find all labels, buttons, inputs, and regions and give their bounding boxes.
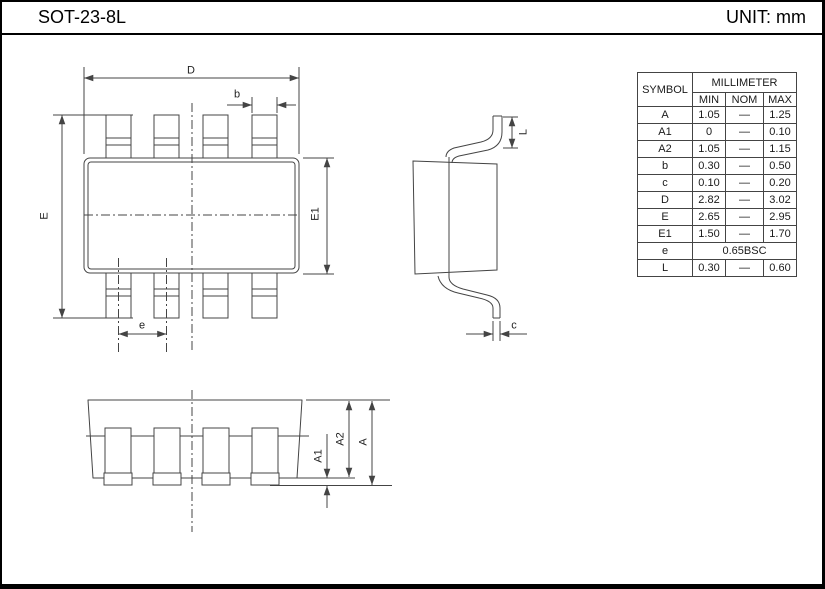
table-cell: 2.82 <box>693 192 726 209</box>
dim-label-e1: E1 <box>311 207 322 220</box>
dim-label-b: b <box>234 90 240 101</box>
table-cell: 0.30 <box>693 260 726 277</box>
table-cell: A1 <box>638 124 693 141</box>
table-cell: L <box>638 260 693 277</box>
table-cell: — <box>726 260 764 277</box>
col-header-millimeter: MILLIMETER <box>693 73 797 93</box>
table-cell: E1 <box>638 226 693 243</box>
dim-label-l: L <box>519 129 530 135</box>
table-cell: 0.65BSC <box>693 243 797 260</box>
table-cell: 2.95 <box>764 209 797 226</box>
table-cell: — <box>726 141 764 158</box>
table-row: A1 0 — 0.10 <box>638 124 797 141</box>
dim-label-e-pitch: e <box>139 321 145 332</box>
table-row: c 0.10 — 0.20 <box>638 175 797 192</box>
col-header-symbol: SYMBOL <box>638 73 693 107</box>
table-row: E1 1.50 — 1.70 <box>638 226 797 243</box>
dim-label-a2: A2 <box>336 432 347 445</box>
dim-label-d: D <box>187 66 195 77</box>
table-cell: — <box>726 124 764 141</box>
table-cell: 0.60 <box>764 260 797 277</box>
table-cell: — <box>726 226 764 243</box>
table-cell: 1.05 <box>693 141 726 158</box>
table-cell: 2.65 <box>693 209 726 226</box>
dim-label-a: A <box>359 438 370 445</box>
dim-label-e-width: E <box>40 212 51 219</box>
dim-label-a1: A1 <box>314 449 325 462</box>
table-cell: 1.25 <box>764 107 797 124</box>
table-cell: — <box>726 192 764 209</box>
table-cell: c <box>638 175 693 192</box>
table-cell: — <box>726 209 764 226</box>
table-cell: 0 <box>693 124 726 141</box>
table-cell: 0.10 <box>764 124 797 141</box>
table-cell: 0.50 <box>764 158 797 175</box>
table-cell: 3.02 <box>764 192 797 209</box>
side-view-body <box>413 161 497 274</box>
table-cell: A2 <box>638 141 693 158</box>
table-cell: e <box>638 243 693 260</box>
col-header-min: MIN <box>693 93 726 107</box>
table-row: b 0.30 — 0.50 <box>638 158 797 175</box>
datasheet-page: SOT-23-8L UNIT: mm <box>0 0 825 589</box>
table-cell: A <box>638 107 693 124</box>
table-cell: — <box>726 107 764 124</box>
dimensions-table: SYMBOL MILLIMETER MIN NOM MAX A 1.05 — 1… <box>637 72 797 277</box>
col-header-max: MAX <box>764 93 797 107</box>
table-cell: D <box>638 192 693 209</box>
col-header-nom: NOM <box>726 93 764 107</box>
table-row: A 1.05 — 1.25 <box>638 107 797 124</box>
table-cell: 1.70 <box>764 226 797 243</box>
table-cell: b <box>638 158 693 175</box>
table-row: D 2.82 — 3.02 <box>638 192 797 209</box>
table-cell: 1.15 <box>764 141 797 158</box>
table-cell: 1.50 <box>693 226 726 243</box>
table-cell: — <box>726 158 764 175</box>
table-cell: — <box>726 175 764 192</box>
table-row: L 0.30 — 0.60 <box>638 260 797 277</box>
table-cell: 0.30 <box>693 158 726 175</box>
table-row: e 0.65BSC <box>638 243 797 260</box>
dim-label-c: c <box>511 321 517 332</box>
table-row: E 2.65 — 2.95 <box>638 209 797 226</box>
table-cell: 1.05 <box>693 107 726 124</box>
table-row: A2 1.05 — 1.15 <box>638 141 797 158</box>
table-cell: 0.10 <box>693 175 726 192</box>
table-cell: 0.20 <box>764 175 797 192</box>
table-cell: E <box>638 209 693 226</box>
